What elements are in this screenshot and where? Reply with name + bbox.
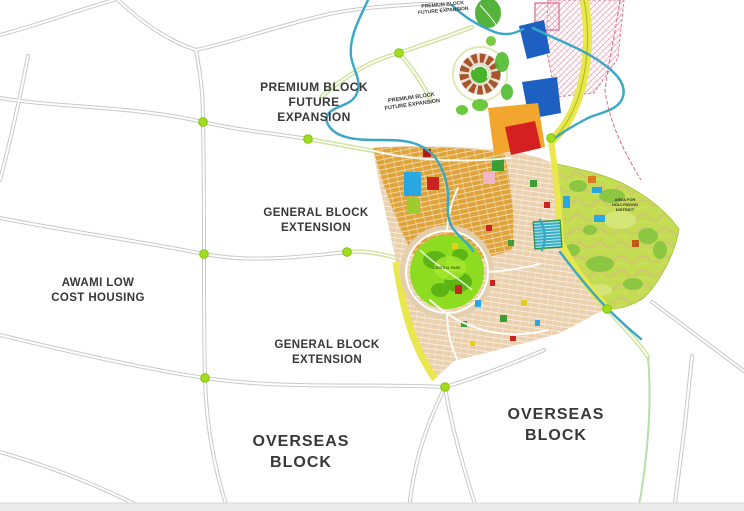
label-general-block-extension-upper: GENERAL BLOCK EXTENSION bbox=[263, 206, 368, 236]
junction-dot bbox=[304, 135, 313, 144]
label-overseas-block-right: OVERSEAS BLOCK bbox=[508, 404, 605, 446]
junction-dot bbox=[201, 374, 210, 383]
junction-dot bbox=[603, 305, 612, 314]
junction-dot bbox=[395, 49, 404, 58]
junction-dot bbox=[441, 383, 450, 392]
label-premium-block-future-expansion: PREMIUM BLOCK FUTURE EXPANSION bbox=[260, 80, 368, 125]
junction-dot bbox=[547, 134, 556, 143]
junction-dot bbox=[343, 248, 352, 257]
label-awami-low-cost-housing: AWAMI LOW COST HOUSING bbox=[51, 276, 145, 306]
label-hill-district-tiny: AREA FOR HOLLYWOOD DISTRICT bbox=[612, 197, 638, 212]
junction-dot bbox=[199, 118, 208, 127]
label-central-park-tiny: CENTRAL PARK bbox=[433, 266, 460, 270]
label-general-block-extension-lower: GENERAL BLOCK EXTENSION bbox=[274, 338, 379, 368]
sports-complex bbox=[533, 220, 562, 249]
bottom-bar bbox=[0, 503, 744, 511]
roundabout bbox=[486, 36, 497, 47]
master-plan-map: PREMIUM BLOCK FUTURE EXPANSION PREMIUM B… bbox=[0, 0, 744, 511]
map-canvas bbox=[0, 0, 744, 511]
label-overseas-block-left: OVERSEAS BLOCK bbox=[253, 431, 350, 473]
junction-dot bbox=[200, 250, 209, 259]
